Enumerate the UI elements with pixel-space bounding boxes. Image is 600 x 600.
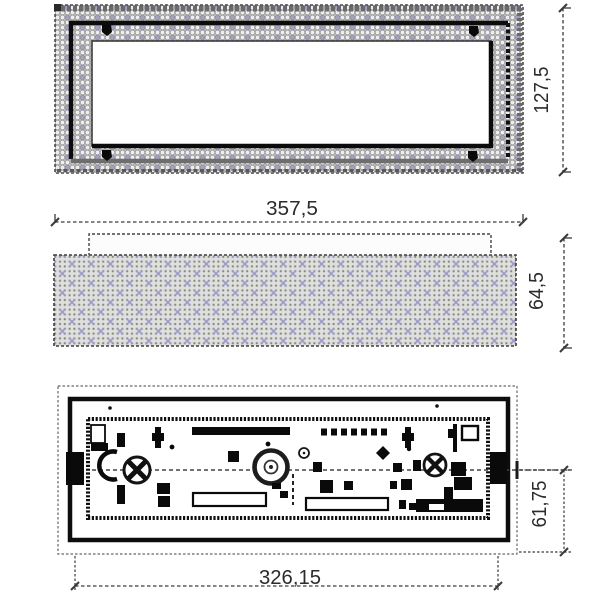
svg-text:326,15: 326,15 <box>259 567 321 589</box>
svg-text:64,5: 64,5 <box>526 272 548 310</box>
svg-text:61,75: 61,75 <box>529 481 551 528</box>
svg-text:357,5: 357,5 <box>266 198 318 220</box>
svg-text:127,5: 127,5 <box>531 67 553 114</box>
